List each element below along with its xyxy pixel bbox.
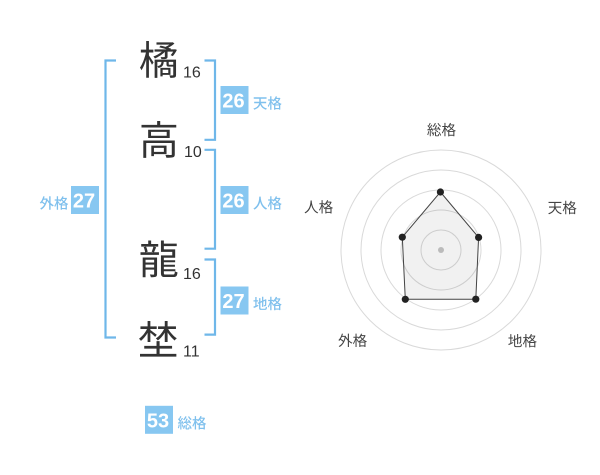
- svg-text:27: 27: [73, 191, 95, 213]
- svg-text:10: 10: [184, 144, 202, 161]
- svg-text:27: 27: [222, 291, 244, 313]
- svg-text:53: 53: [147, 410, 169, 432]
- svg-text:16: 16: [183, 266, 201, 283]
- svg-text:26: 26: [222, 91, 244, 113]
- svg-text:16: 16: [183, 65, 201, 82]
- svg-text:11: 11: [183, 343, 200, 360]
- svg-text:26: 26: [222, 191, 244, 213]
